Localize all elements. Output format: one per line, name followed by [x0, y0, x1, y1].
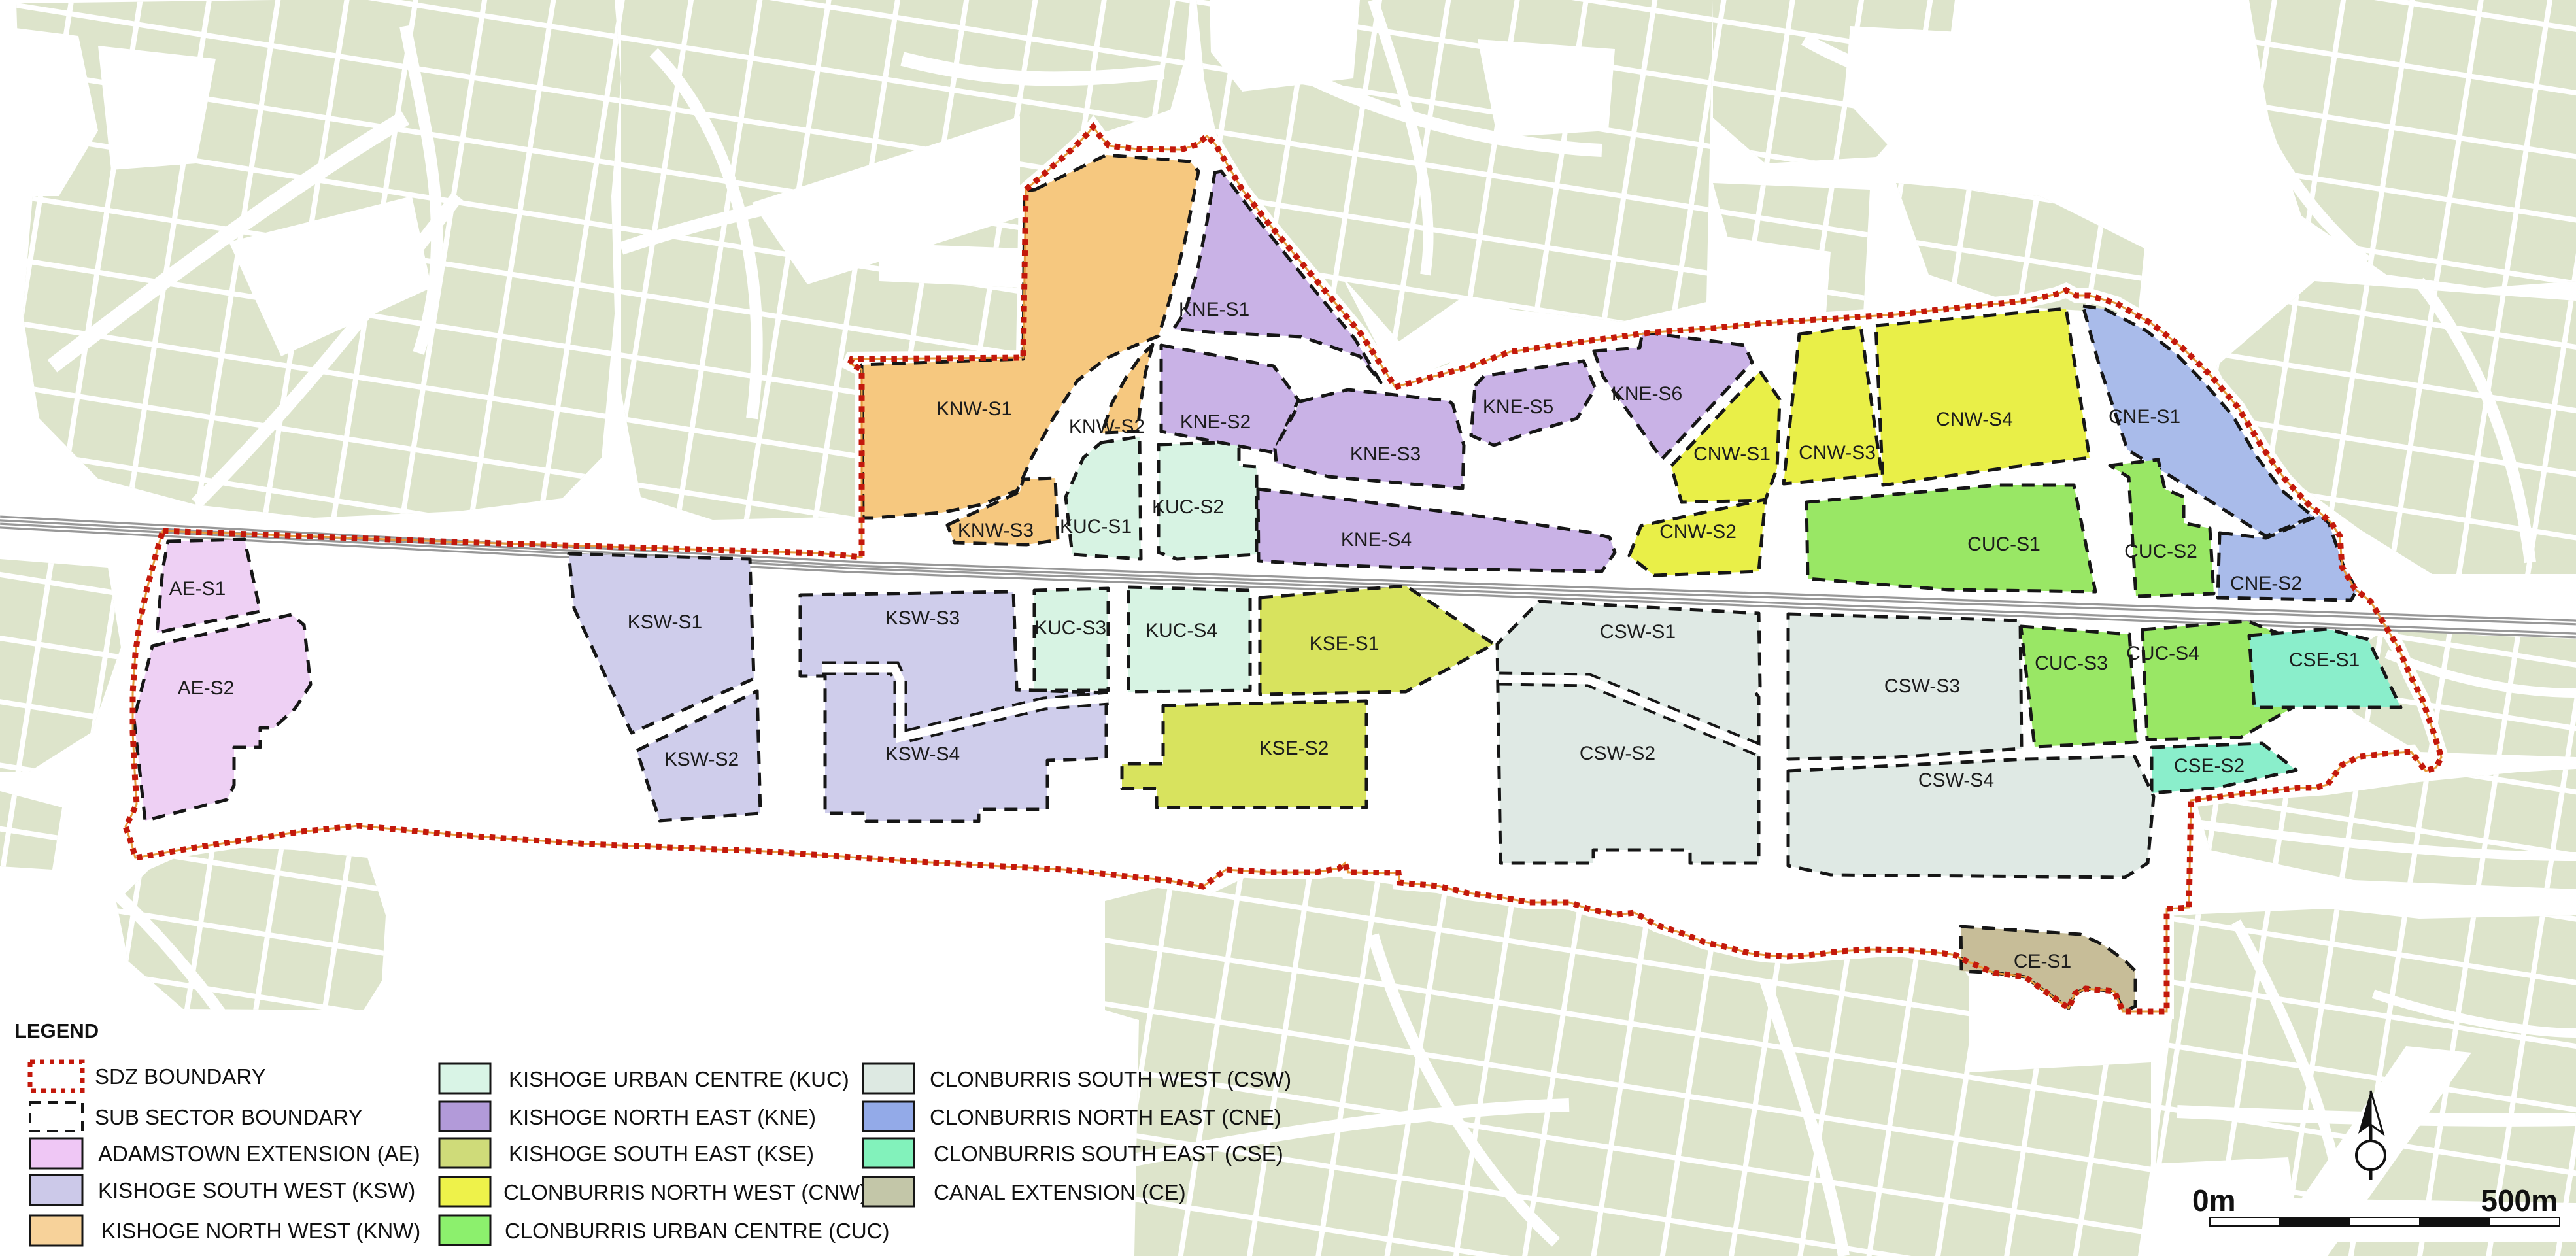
- svg-text:CLONBURRIS NORTH WEST (CNW): CLONBURRIS NORTH WEST (CNW): [503, 1180, 867, 1204]
- svg-text:CNW-S2: CNW-S2: [1659, 521, 1737, 543]
- svg-text:KISHOGE URBAN CENTRE (KUC): KISHOGE URBAN CENTRE (KUC): [509, 1067, 849, 1091]
- svg-text:KSW-S2: KSW-S2: [664, 749, 739, 770]
- svg-text:KNE-S3: KNE-S3: [1350, 443, 1421, 465]
- svg-text:KSE-S2: KSE-S2: [1259, 738, 1329, 759]
- svg-text:AE-S2: AE-S2: [178, 677, 235, 699]
- svg-text:SDZ BOUNDARY: SDZ BOUNDARY: [95, 1064, 266, 1089]
- svg-text:KSW-S4: KSW-S4: [885, 743, 960, 765]
- svg-text:500m: 500m: [2481, 1183, 2558, 1217]
- svg-text:KUC-S4: KUC-S4: [1145, 620, 1217, 641]
- svg-text:KSE-S1: KSE-S1: [1310, 633, 1380, 654]
- svg-text:CSE-S1: CSE-S1: [2289, 649, 2360, 671]
- svg-text:CLONBURRIS NORTH EAST (CNE): CLONBURRIS NORTH EAST (CNE): [930, 1105, 1281, 1129]
- svg-text:KISHOGE SOUTH EAST (KSE): KISHOGE SOUTH EAST (KSE): [509, 1142, 814, 1166]
- svg-text:CUC-S3: CUC-S3: [2035, 653, 2108, 674]
- svg-text:CLONBURRIS SOUTH EAST (CSE): CLONBURRIS SOUTH EAST (CSE): [934, 1142, 1283, 1166]
- svg-text:KNW-S3: KNW-S3: [958, 520, 1034, 541]
- svg-text:KNE-S2: KNE-S2: [1180, 411, 1251, 433]
- svg-text:0m: 0m: [2192, 1183, 2235, 1217]
- svg-text:CUC-S4: CUC-S4: [2126, 643, 2199, 664]
- svg-text:SUB SECTOR BOUNDARY: SUB SECTOR BOUNDARY: [95, 1105, 363, 1129]
- svg-text:CLONBURRIS URBAN CENTRE (CUC): CLONBURRIS URBAN CENTRE (CUC): [505, 1219, 890, 1243]
- svg-text:KUC-S2: KUC-S2: [1152, 496, 1224, 518]
- svg-text:CNW-S4: CNW-S4: [1936, 409, 2013, 430]
- svg-text:CNW-S1: CNW-S1: [1693, 443, 1771, 465]
- svg-text:KNW-S2: KNW-S2: [1069, 416, 1145, 437]
- svg-text:KISHOGE SOUTH WEST (KSW): KISHOGE SOUTH WEST (KSW): [98, 1178, 415, 1202]
- svg-text:CANAL EXTENSION (CE): CANAL EXTENSION (CE): [934, 1180, 1186, 1204]
- svg-text:KNE-S6: KNE-S6: [1612, 383, 1682, 405]
- svg-text:KNE-S5: KNE-S5: [1483, 396, 1553, 418]
- svg-text:KSW-S3: KSW-S3: [885, 607, 960, 629]
- svg-text:KNE-S4: KNE-S4: [1341, 529, 1412, 551]
- svg-text:KUC-S3: KUC-S3: [1034, 617, 1106, 639]
- svg-text:CUC-S1: CUC-S1: [1967, 534, 2041, 555]
- svg-text:KISHOGE NORTH EAST (KNE): KISHOGE NORTH EAST (KNE): [509, 1105, 816, 1129]
- svg-text:KUC-S1: KUC-S1: [1060, 516, 1132, 537]
- svg-text:CNE-S2: CNE-S2: [2230, 573, 2302, 594]
- svg-text:CSE-S2: CSE-S2: [2174, 755, 2245, 777]
- svg-text:CSW-S2: CSW-S2: [1580, 743, 1655, 764]
- svg-text:CNW-S3: CNW-S3: [1799, 442, 1876, 464]
- svg-text:AE-S1: AE-S1: [169, 578, 226, 600]
- svg-text:ADAMSTOWN EXTENSION (AE): ADAMSTOWN EXTENSION (AE): [98, 1142, 420, 1166]
- svg-text:CSW-S1: CSW-S1: [1600, 621, 1676, 643]
- svg-text:CNE-S1: CNE-S1: [2109, 406, 2180, 428]
- svg-text:CE-S1: CE-S1: [2014, 951, 2071, 972]
- svg-text:KNW-S1: KNW-S1: [936, 398, 1012, 420]
- svg-text:CLONBURRIS SOUTH WEST (CSW): CLONBURRIS SOUTH WEST (CSW): [930, 1067, 1291, 1091]
- svg-text:CUC-S2: CUC-S2: [2124, 541, 2197, 562]
- svg-text:KSW-S1: KSW-S1: [628, 611, 702, 633]
- svg-text:LEGEND: LEGEND: [14, 1019, 99, 1042]
- svg-text:CSW-S3: CSW-S3: [1884, 675, 1960, 697]
- svg-text:KNE-S1: KNE-S1: [1179, 299, 1249, 320]
- svg-text:KISHOGE NORTH WEST (KNW): KISHOGE NORTH WEST (KNW): [101, 1219, 420, 1243]
- svg-text:CSW-S4: CSW-S4: [1918, 770, 1994, 791]
